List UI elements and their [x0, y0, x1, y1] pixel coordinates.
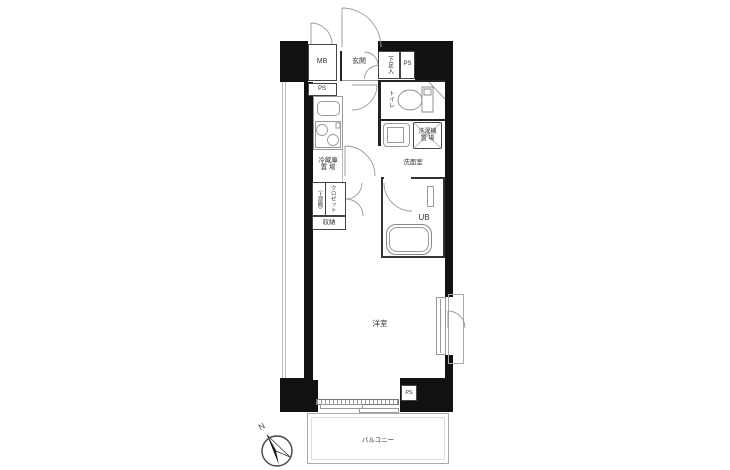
pipe-space-kitchen-label: PS	[306, 83, 338, 96]
closet-label: クロゼット	[326, 183, 339, 215]
entrance-label: 玄関	[340, 56, 378, 68]
compass-needle-light	[267, 435, 290, 457]
plan-linework	[0, 0, 730, 470]
washer-space-line2: 置 場	[421, 136, 435, 143]
stove-burner-icon	[317, 125, 328, 136]
pipe-space-bottom-label: PS	[401, 386, 417, 400]
storage-label: 収納	[312, 217, 346, 229]
toilet-lid-detail	[424, 89, 431, 95]
closet-shelf-label: （上部棚）	[313, 183, 325, 215]
bath-door-arc	[384, 183, 412, 211]
meter-box-label: MB	[306, 56, 338, 68]
toilet-label: トイレ	[384, 83, 396, 115]
unit-bath-label: UB	[410, 211, 438, 224]
stove-knob	[336, 123, 340, 128]
washroom-label: 洗面室	[391, 157, 435, 169]
toilet-bowl-icon	[398, 90, 422, 110]
fridge-space-line1: 冷蔵庫	[318, 157, 338, 164]
balcony-label: バルコニー	[346, 435, 410, 447]
pipe-space-top-label: PS	[399, 58, 416, 70]
hall-door-arc	[352, 85, 377, 110]
side-door-arc	[448, 311, 465, 328]
floor-plan: MB PS 玄関 下足入 PS トイレ 冷蔵庫 置 場 洗濯機 置 場 洗面室 …	[0, 0, 730, 470]
fridge-space-label: 冷蔵庫 置 場	[311, 152, 345, 176]
closet-door-arcs	[346, 183, 363, 216]
washer-space-line1: 洗濯機	[418, 129, 436, 136]
entrance-door-arc	[342, 8, 381, 47]
compass	[262, 435, 292, 466]
washer-space-label: 洗濯機 置 場	[414, 123, 441, 148]
meter-box-door-arc	[311, 23, 332, 44]
western-room-label: 洋室	[364, 318, 396, 331]
washroom-door-arc	[345, 146, 375, 176]
stove-burner-icon	[328, 135, 339, 146]
fridge-space-line2: 置 場	[321, 164, 336, 171]
shoe-cabinet-label: 下足入	[383, 51, 395, 79]
